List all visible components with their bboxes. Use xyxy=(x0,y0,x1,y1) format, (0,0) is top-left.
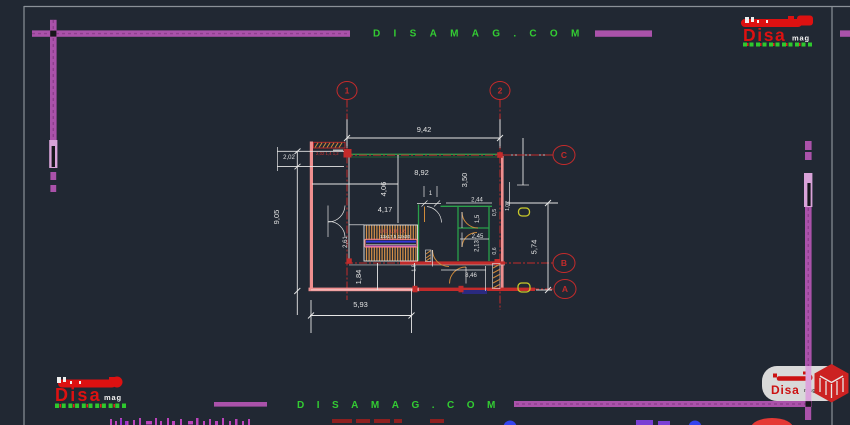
svg-text:2,61: 2,61 xyxy=(343,236,349,248)
svg-text:9,42: 9,42 xyxy=(417,125,432,134)
svg-text:4,17: 4,17 xyxy=(378,205,393,214)
svg-text:1,9: 1,9 xyxy=(412,264,418,271)
svg-text:8,46: 8,46 xyxy=(465,273,477,279)
svg-text:DISAMAG.COM: DISAMAG.COM xyxy=(297,400,508,411)
svg-text:Disa: Disa xyxy=(771,383,800,397)
svg-text:0,6: 0,6 xyxy=(492,247,498,254)
svg-text:1,81 1,18 1,8: 1,81 1,18 1,8 xyxy=(379,229,406,234)
svg-text:0,5: 0,5 xyxy=(492,209,498,216)
svg-text:DISAMAG.COM: DISAMAG.COM xyxy=(373,29,593,40)
svg-text:8,92: 8,92 xyxy=(414,168,429,177)
svg-text:B: B xyxy=(561,258,567,268)
svg-text:2,45: 2,45 xyxy=(472,234,484,240)
svg-text:3,50: 3,50 xyxy=(460,173,469,188)
svg-text:5,93: 5,93 xyxy=(353,300,368,309)
svg-text:2: 2 xyxy=(498,86,503,96)
svg-text:mag: mag xyxy=(104,393,122,402)
svg-text:1,02: 1,02 xyxy=(505,201,511,211)
svg-text:mag: mag xyxy=(792,34,810,43)
svg-text:1,5: 1,5 xyxy=(475,214,481,223)
svg-text:13x17,5 12x30: 13x17,5 12x30 xyxy=(380,234,411,239)
svg-text:5,74: 5,74 xyxy=(530,240,539,255)
svg-text:1: 1 xyxy=(345,86,350,96)
svg-text:4,06: 4,06 xyxy=(379,182,388,197)
svg-text:9,05: 9,05 xyxy=(272,210,281,225)
svg-text:1,84: 1,84 xyxy=(354,270,363,285)
svg-text:Disa: Disa xyxy=(55,385,102,405)
svg-text:A: A xyxy=(562,284,568,294)
svg-text:Disa: Disa xyxy=(743,25,786,45)
svg-text:2,13: 2,13 xyxy=(475,240,481,252)
svg-text:2,02: 2,02 xyxy=(283,155,295,161)
svg-text:C: C xyxy=(561,150,567,160)
svg-text:2,44: 2,44 xyxy=(471,198,483,204)
